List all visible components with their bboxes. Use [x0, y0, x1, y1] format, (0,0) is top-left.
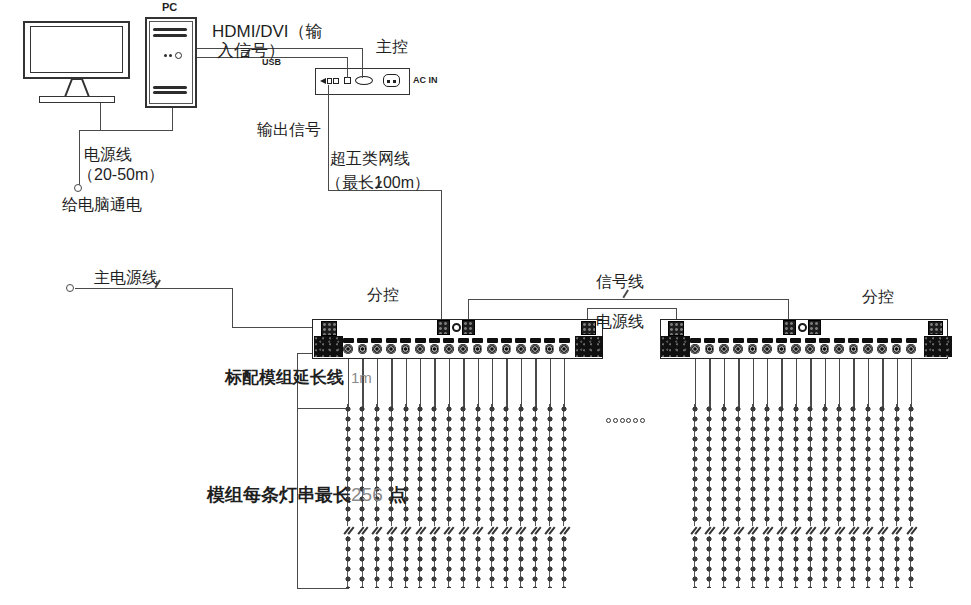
main-power-cable	[75, 288, 233, 289]
extension-label-text: 标配模组延长线	[225, 368, 344, 387]
led-string	[878, 404, 886, 588]
sub-controller-1-port-dash	[443, 338, 454, 343]
led-string-break-mark	[501, 526, 512, 536]
sub-controller-2-port-dash	[862, 338, 873, 343]
sub-controller-1-port-dash	[371, 338, 382, 343]
led-string-lead	[406, 359, 407, 408]
sub-controller-2-port-dash	[762, 338, 773, 343]
main-power-label: 主电源线	[94, 269, 158, 287]
sub-controller-2-port-dash	[819, 338, 830, 343]
led-string	[907, 404, 915, 588]
led-string-lead	[478, 359, 479, 408]
continuation-dot	[626, 418, 631, 423]
led-string-lead	[420, 359, 421, 408]
signal-cable	[788, 299, 789, 321]
monitor-stand	[62, 78, 92, 98]
led-string-break-mark	[559, 526, 570, 536]
pc-vent-slot	[153, 34, 187, 37]
pc-label: PC	[162, 1, 177, 13]
led-string-lead	[839, 359, 840, 408]
main-power-cable	[232, 288, 233, 327]
sub-controller-2-port	[705, 344, 715, 354]
sub-controller-1-port-dash	[515, 338, 526, 343]
led-string	[691, 404, 699, 588]
led-string-lead	[463, 359, 464, 408]
sub-controller-1-port	[401, 344, 411, 354]
signal-cable	[468, 299, 469, 321]
sub-controller-2-port-dash	[747, 338, 758, 343]
pc-power-note-label: 给电脑通电	[62, 196, 142, 214]
sub-controller-2-power-out-connector	[928, 321, 943, 335]
led-string	[705, 404, 713, 588]
led-string-break-mark	[733, 526, 744, 536]
led-string	[835, 404, 843, 588]
led-string-break-mark	[415, 526, 426, 536]
sub-controller-2-port-dash	[790, 338, 801, 343]
led-string	[749, 404, 757, 588]
main-controller-label: 主控	[376, 38, 408, 56]
sub-controller-2-power-in-connector	[668, 321, 684, 336]
sub-controller-1-port-dash	[343, 338, 354, 343]
string-length-text: 模组每条灯串最长	[207, 485, 351, 505]
pc-drive-slot	[153, 91, 187, 94]
led-string-lead	[882, 359, 883, 408]
usb-label: USB	[262, 58, 281, 68]
inter-power-cable	[587, 308, 677, 309]
led-string	[792, 404, 800, 588]
main-power-cable	[232, 327, 313, 328]
led-string-break-mark	[458, 526, 469, 536]
led-string-break-mark	[906, 526, 917, 536]
led-string-lead	[753, 359, 754, 408]
sub-controller-1-port-dash	[415, 338, 426, 343]
sub-controller-1-port-dash	[400, 338, 411, 343]
led-string	[517, 404, 525, 588]
led-string-break-mark	[515, 526, 526, 536]
continuation-dot	[606, 418, 611, 423]
sub-controller-2-port	[791, 344, 801, 354]
led-string-lead	[738, 359, 739, 408]
pc-power-plug	[74, 184, 82, 192]
string-length-suffix: 点	[389, 485, 407, 505]
ac-in-label: AC IN	[413, 76, 438, 86]
ac-inlet	[383, 74, 400, 87]
led-string-lead	[825, 359, 826, 408]
sub-controller-2-port	[805, 344, 815, 354]
led-string-lead	[868, 359, 869, 408]
led-string	[416, 404, 424, 588]
led-string-lead	[810, 359, 811, 408]
continuation-dot	[640, 418, 645, 423]
hdmi-cable	[362, 48, 363, 78]
led-string-lead	[377, 359, 378, 408]
led-string	[459, 404, 467, 588]
pc-led-dot	[169, 54, 172, 57]
led-string-lead	[781, 359, 782, 408]
power-wire-label: 电源线	[596, 313, 644, 331]
sub-controller-2-port-dash	[718, 338, 729, 343]
led-string-lead	[434, 359, 435, 408]
sub-controller-2-indicator	[798, 323, 807, 332]
led-string-break-mark	[544, 526, 555, 536]
sub-controller-1-port	[372, 344, 382, 354]
led-string	[488, 404, 496, 588]
led-string	[546, 404, 554, 588]
sub-controller-2-port	[719, 344, 729, 354]
sub-controller-1-port	[545, 344, 555, 354]
sub-controller-2-port	[892, 344, 902, 354]
string-length-label: 模组每条灯串最长256点	[207, 485, 407, 506]
continuation-dot	[620, 418, 625, 423]
led-string	[474, 404, 482, 588]
dimension-bracket	[297, 353, 298, 589]
led-string-lead	[492, 359, 493, 408]
extension-label: 标配模组延长线1m	[225, 369, 372, 388]
monitor-base	[39, 96, 115, 103]
wiring-diagram: PC HDMI/DVI（输 入信号） USB 主控 AC IN 电源线 （20-…	[0, 0, 971, 605]
led-string	[445, 404, 453, 588]
sub-controller-2-port	[877, 344, 887, 354]
sub-controller-2-port	[906, 344, 916, 354]
sub-controller-1-power-out-connector	[581, 321, 596, 335]
led-string-lead	[897, 359, 898, 408]
led-string-lead	[535, 359, 536, 408]
signal-cable	[468, 299, 789, 300]
sub-controller-2-port	[762, 344, 772, 354]
sub-controller-1-port-dash	[530, 338, 541, 343]
led-string-lead	[796, 359, 797, 408]
dimension-bracket	[297, 588, 349, 589]
sub-controller-2-port	[820, 344, 830, 354]
sub-controller-1-left-terminal-block	[314, 336, 343, 357]
dimension-bracket	[297, 408, 348, 409]
led-string-break-mark	[790, 526, 801, 536]
led-string	[893, 404, 901, 588]
main-power-plug	[66, 284, 74, 292]
sub-controller-1-port	[487, 344, 497, 354]
pc-led-dot	[164, 54, 167, 57]
led-string	[720, 404, 728, 588]
sub-controller-1-port-dash	[472, 338, 483, 343]
sub-controller-2-signal-in-connector	[783, 320, 796, 335]
sub-controller-1-signal-in-connector	[437, 320, 450, 335]
led-string	[734, 404, 742, 588]
sub-controller-1-port	[473, 344, 483, 354]
cat5-length-label: （最长100m）	[326, 174, 430, 192]
sub-controller-2-left-terminal-block	[661, 336, 690, 357]
sub-controller-2-port-dash	[877, 338, 888, 343]
sub-controller-1-port	[502, 344, 512, 354]
led-string-lead	[564, 359, 565, 408]
string-length-value: 256	[351, 484, 383, 505]
sub-controller-1-port-dash	[501, 338, 512, 343]
sub-controller-2-port	[733, 344, 743, 354]
sub-controller-1-port-dash	[357, 338, 368, 343]
pc-power-label: 电源线	[84, 146, 132, 164]
net-out-port-icon	[320, 78, 326, 84]
led-string-break-mark	[386, 526, 397, 536]
sub-controller-1-port	[386, 344, 396, 354]
sub-controller-2-label: 分控	[862, 288, 894, 306]
sub-controller-2-port	[748, 344, 758, 354]
extension-value: 1m	[351, 369, 372, 386]
usb-port	[344, 77, 351, 84]
sub-controller-1-port	[458, 344, 468, 354]
led-string-break-mark	[718, 526, 729, 536]
led-string-lead	[695, 359, 696, 408]
sub-controller-1-port	[358, 344, 368, 354]
sub-controller-1-port-dash	[429, 338, 440, 343]
led-string	[849, 404, 857, 588]
net-out-port	[327, 78, 332, 84]
led-string	[806, 404, 814, 588]
led-string-break-mark	[429, 526, 440, 536]
led-string-lead	[911, 359, 912, 408]
sub-controller-1-port	[530, 344, 540, 354]
sub-controller-1-label: 分控	[367, 286, 399, 304]
pc-power-cable	[172, 108, 173, 130]
sub-controller-2-port-dash	[848, 338, 859, 343]
pc-power-button	[175, 52, 182, 59]
led-string-break-mark	[848, 526, 859, 536]
led-string-break-mark	[400, 526, 411, 536]
pc-power-cable	[79, 130, 173, 131]
led-string-lead	[521, 359, 522, 408]
led-string-break-mark	[776, 526, 787, 536]
sub-controller-2-port	[834, 344, 844, 354]
sub-controller-1-port	[430, 344, 440, 354]
sub-controller-1-signal-out-connector	[462, 320, 475, 335]
continuation-dot	[613, 418, 618, 423]
led-string-lead	[449, 359, 450, 408]
pc-drive-slot	[153, 86, 187, 89]
cat5-cable	[441, 190, 442, 321]
sub-controller-1-port-dash	[487, 338, 498, 343]
led-string	[560, 404, 568, 588]
led-string-break-mark	[472, 526, 483, 536]
sub-controller-1-port	[343, 344, 353, 354]
led-string	[502, 404, 510, 588]
led-string-break-mark	[371, 526, 382, 536]
sub-controller-1-port-dash	[544, 338, 555, 343]
led-string	[763, 404, 771, 588]
cat5-label: 超五类网线	[330, 150, 410, 168]
sub-controller-2-port-dash	[805, 338, 816, 343]
led-string-break-mark	[343, 526, 354, 536]
led-string-break-mark	[877, 526, 888, 536]
led-string-break-mark	[819, 526, 830, 536]
pc-vent-slot	[153, 28, 187, 31]
usb-cable	[347, 57, 348, 78]
led-string-lead	[550, 359, 551, 408]
led-string-lead	[767, 359, 768, 408]
led-string-break-mark	[357, 526, 368, 536]
led-string	[777, 404, 785, 588]
sub-controller-2-port-dash	[834, 338, 845, 343]
led-string-break-mark	[690, 526, 701, 536]
dimension-bracket	[297, 353, 313, 354]
hdmi-label-line1: HDMI/DVI（输	[212, 23, 323, 42]
led-string-lead	[724, 359, 725, 408]
sub-controller-2-right-terminal-block	[924, 336, 952, 357]
led-string-break-mark	[530, 526, 541, 536]
sub-controller-1-power-in-connector	[321, 321, 337, 336]
led-string-break-mark	[443, 526, 454, 536]
pc-power-length-label: （20-50m）	[78, 166, 164, 184]
monitor-screen	[30, 26, 123, 73]
led-string-lead	[709, 359, 710, 408]
sub-controller-1-right-terminal-block	[575, 336, 603, 357]
led-string-break-mark	[834, 526, 845, 536]
pc-power-cable	[100, 103, 101, 130]
sub-controller-1-port	[444, 344, 454, 354]
sub-controller-1-port-dash	[386, 338, 397, 343]
led-string-break-mark	[704, 526, 715, 536]
sub-controller-1-indicator	[452, 323, 461, 332]
sub-controller-1-port	[415, 344, 425, 354]
sub-controller-1-port-dash	[458, 338, 469, 343]
led-string-break-mark	[805, 526, 816, 536]
led-string	[430, 404, 438, 588]
led-string-break-mark	[862, 526, 873, 536]
led-string	[531, 404, 539, 588]
continuation-dot	[633, 418, 638, 423]
led-string-break-mark	[891, 526, 902, 536]
led-string-lead	[506, 359, 507, 408]
sub-controller-1-port	[516, 344, 526, 354]
sub-controller-2-port	[863, 344, 873, 354]
led-string-break-mark	[487, 526, 498, 536]
sub-controller-2-port-dash	[776, 338, 787, 343]
hdmi-dvi-port	[355, 76, 373, 85]
sub-controller-2-port-dash	[690, 338, 701, 343]
sub-controller-2-port	[690, 344, 700, 354]
sub-controller-1-port	[559, 344, 569, 354]
led-string	[864, 404, 872, 588]
led-string-lead	[391, 359, 392, 408]
sub-controller-2-port	[849, 344, 859, 354]
sub-controller-2-port	[777, 344, 787, 354]
sub-controller-1-port-dash	[559, 338, 570, 343]
led-string-break-mark	[747, 526, 758, 536]
sub-controller-2-port-dash	[733, 338, 744, 343]
signal-wire-label: 信号线	[596, 273, 644, 291]
output-signal-label: 输出信号	[257, 121, 321, 139]
net-out-port	[333, 78, 339, 84]
signal-break-mark	[622, 290, 628, 298]
led-string-break-mark	[762, 526, 773, 536]
led-string-lead	[853, 359, 854, 408]
sub-controller-2-port-dash	[891, 338, 902, 343]
sub-controller-2-signal-out-connector	[808, 320, 821, 335]
sub-controller-2-port-dash	[906, 338, 917, 343]
sub-controller-2-port-dash	[704, 338, 715, 343]
led-string	[821, 404, 829, 588]
